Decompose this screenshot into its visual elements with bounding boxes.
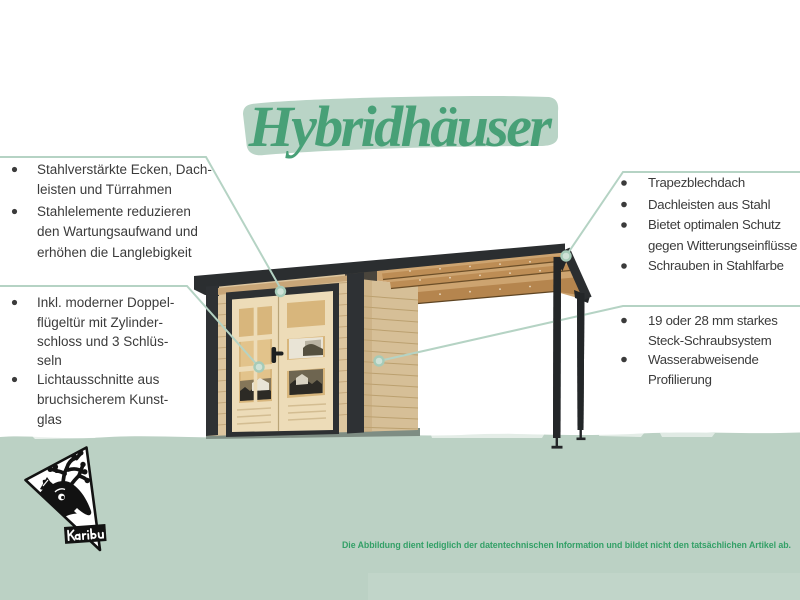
svg-text:Hybridhäuser: Hybridhäuser xyxy=(248,94,553,159)
